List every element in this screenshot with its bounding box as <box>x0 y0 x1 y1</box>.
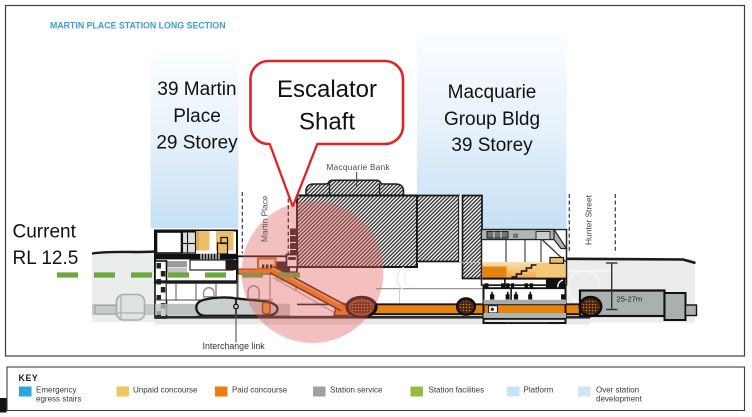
svg-text:25-27m: 25-27m <box>617 295 643 304</box>
svg-text:Over station: Over station <box>596 386 639 395</box>
svg-text:Current: Current <box>13 222 77 243</box>
svg-text:39 Storey: 39 Storey <box>451 135 533 156</box>
svg-text:Escalator: Escalator <box>277 76 377 103</box>
svg-text:Interchange link: Interchange link <box>203 341 266 351</box>
svg-text:Hunter Street: Hunter Street <box>584 195 594 245</box>
svg-text:Macquarie: Macquarie <box>448 82 537 103</box>
svg-text:Unpaid concourse: Unpaid concourse <box>133 386 198 395</box>
svg-text:Paid concourse: Paid concourse <box>232 386 288 395</box>
svg-text:development: development <box>596 395 643 404</box>
svg-text:Platform: Platform <box>524 386 554 395</box>
svg-text:Station facilities: Station facilities <box>429 386 485 395</box>
svg-text:Martin Place: Martin Place <box>260 195 270 242</box>
svg-text:Place: Place <box>173 106 221 127</box>
svg-text:Emergency: Emergency <box>36 386 76 395</box>
svg-text:Station service: Station service <box>330 386 383 395</box>
svg-text:29 Storey: 29 Storey <box>156 133 238 154</box>
svg-text:MARTIN PLACE STATION LONG SECT: MARTIN PLACE STATION LONG SECTION <box>50 21 226 31</box>
svg-text:egress stairs: egress stairs <box>36 395 81 404</box>
svg-text:RL 12.5: RL 12.5 <box>13 248 79 269</box>
svg-text:Macquarie Bank: Macquarie Bank <box>327 163 391 172</box>
svg-text:39 Martin: 39 Martin <box>157 79 236 100</box>
svg-text:Group Bldg: Group Bldg <box>444 109 540 130</box>
svg-text:KEY: KEY <box>19 373 39 383</box>
svg-text:Shaft: Shaft <box>299 109 355 136</box>
